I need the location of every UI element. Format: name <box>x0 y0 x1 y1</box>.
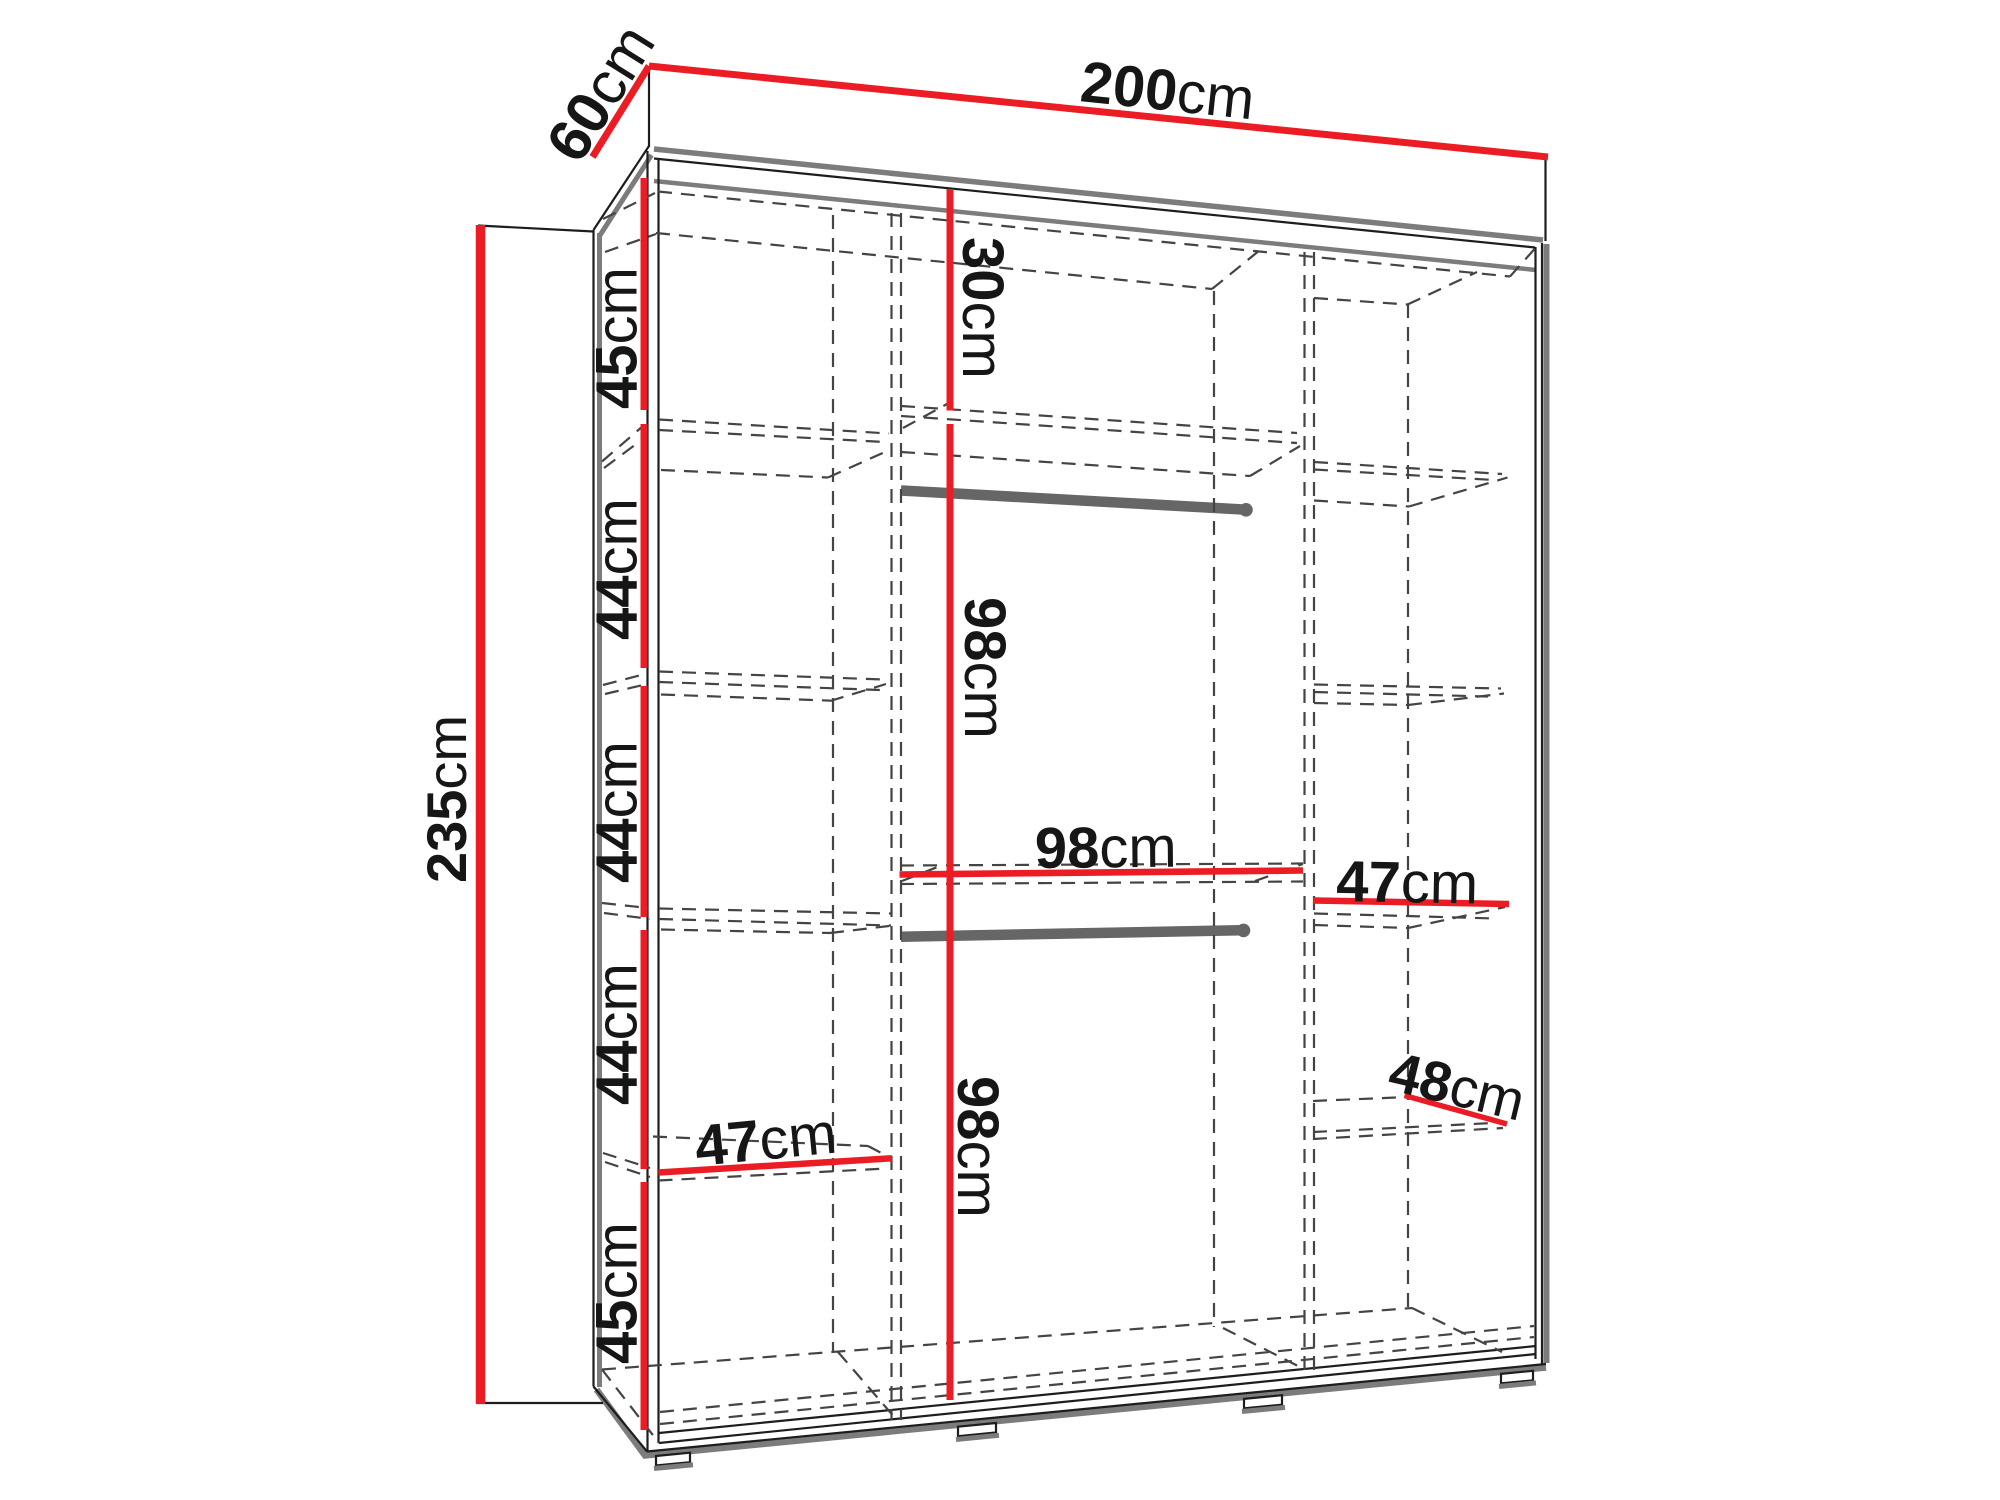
svg-text:44cm: 44cm <box>585 741 650 883</box>
svg-text:98cm: 98cm <box>1035 815 1177 881</box>
svg-text:44cm: 44cm <box>585 963 650 1105</box>
svg-text:47cm: 47cm <box>692 1101 839 1179</box>
svg-text:45cm: 45cm <box>585 1222 650 1364</box>
svg-text:235cm: 235cm <box>415 715 478 883</box>
svg-text:45cm: 45cm <box>585 267 650 409</box>
svg-text:44cm: 44cm <box>585 498 650 640</box>
svg-text:98cm: 98cm <box>952 597 1017 739</box>
svg-text:30cm: 30cm <box>950 237 1015 379</box>
svg-text:98cm: 98cm <box>945 1076 1010 1218</box>
svg-text:47cm: 47cm <box>1336 849 1479 916</box>
